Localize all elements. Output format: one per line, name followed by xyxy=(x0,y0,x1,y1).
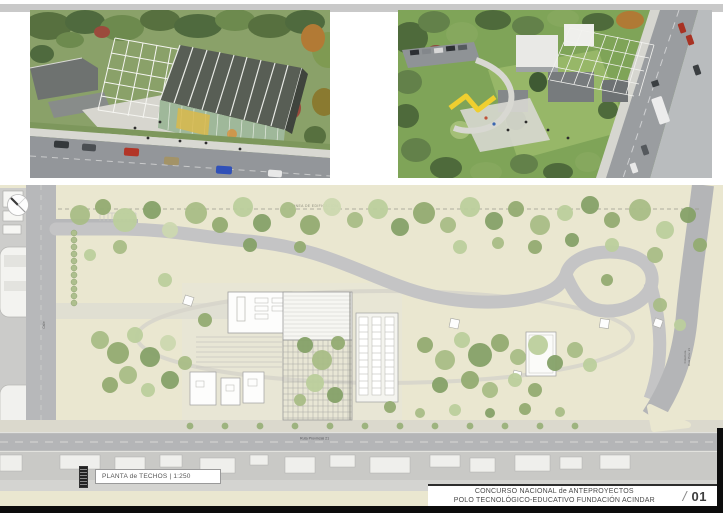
title-block: CONCURSO NACIONAL de ANTEPROYECTOS POLO … xyxy=(428,484,717,506)
right-edge-frame xyxy=(717,428,723,513)
plan-title-bar: PLANTA de TECHOS | 1:250 xyxy=(95,469,221,484)
plan-title-label: PLANTA de TECHOS | 1:250 xyxy=(102,473,191,480)
site-plan: LINEA DE EDIFICACION xyxy=(0,185,723,506)
north-arrow-icon xyxy=(8,195,29,216)
title-divider: / xyxy=(683,488,687,504)
competition-title: CONCURSO NACIONAL de ANTEPROYECTOS POLO … xyxy=(428,487,681,505)
site-plan-art: LINEA DE EDIFICACION xyxy=(0,185,723,506)
left-street-label: Calle xyxy=(42,321,46,328)
aerial-render-main-building xyxy=(30,10,330,178)
scale-stamp xyxy=(79,466,88,488)
route-21-label: Ruta Provincial 21 xyxy=(300,437,329,441)
hedge-row xyxy=(71,230,77,306)
aerial-render-campus-park xyxy=(398,10,712,178)
render-right-art xyxy=(398,10,712,178)
render-left-art xyxy=(30,10,330,178)
right-street-label-2: Ruta Prov. 21 xyxy=(687,348,691,366)
title-line-2: POLO TECNOLÓGICO-EDUCATIVO FUNDACIÓN ACI… xyxy=(428,496,681,505)
sidewalk xyxy=(0,420,723,432)
parking-area xyxy=(356,313,398,402)
sheet-number: 01 xyxy=(692,489,707,504)
bottom-edge-frame xyxy=(0,506,723,513)
title-line-1: CONCURSO NACIONAL de ANTEPROYECTOS xyxy=(428,487,681,496)
presentation-sheet: LINEA DE EDIFICACION xyxy=(0,0,723,513)
